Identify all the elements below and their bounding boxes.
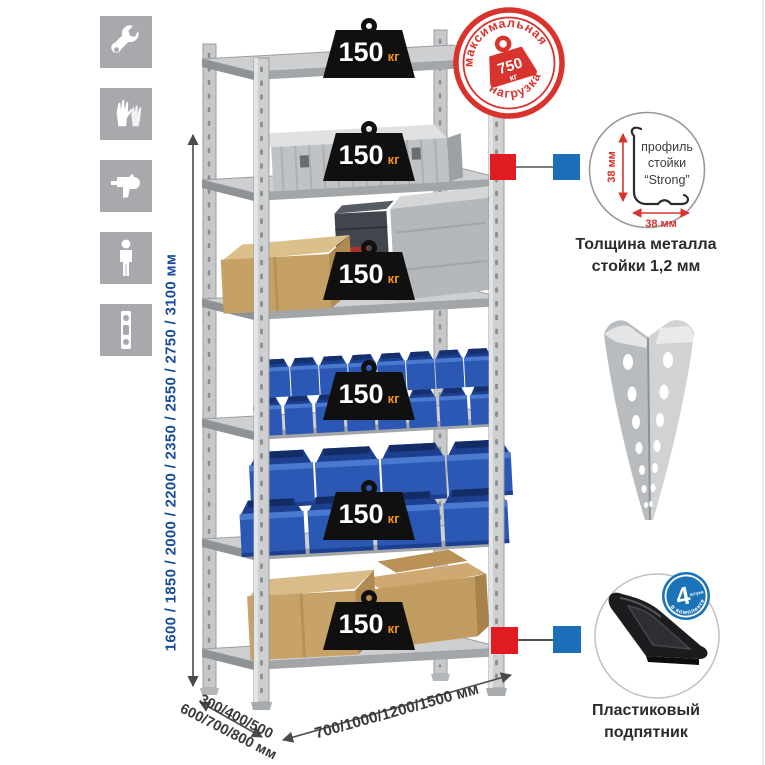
max-load-stamp: максимальная нагрузка 750 кг (452, 6, 566, 120)
shelf6-load-weight: 150 кг (323, 602, 415, 650)
profile-caption-line1: Толщина металла (551, 234, 741, 256)
load-value: 150 (339, 261, 384, 288)
profile-caption-line2: стойки 1,2 мм (551, 256, 741, 278)
profile-detail-callout: 38 мм 38 мм профиль стойки “Strong” (585, 109, 709, 233)
shelf4-load-weight: 150 кг (323, 372, 415, 420)
load-value: 150 (339, 611, 384, 638)
shelf5-load-weight: 150 кг (323, 492, 415, 540)
profile-label-line1: профиль (641, 140, 693, 154)
profile-height-dim: 38 мм (606, 151, 618, 183)
shelf2-load-weight: 150 кг (323, 133, 415, 181)
foot-callout-connector (491, 626, 581, 654)
foot-caption-line2: подпятник (551, 722, 741, 744)
load-unit: кг (388, 511, 400, 526)
load-unit: кг (388, 621, 400, 636)
profile-label-line3: “Strong” (644, 173, 689, 187)
product-infographic: 1600 / 1850 / 2000 / 2200 / 2350 / 2550 … (0, 0, 765, 765)
load-unit: кг (388, 152, 400, 167)
load-value: 150 (339, 39, 384, 66)
load-unit: кг (388, 391, 400, 406)
profile-caption: Толщина металла стойки 1,2 мм (551, 234, 741, 277)
load-value: 150 (339, 501, 384, 528)
load-value: 150 (339, 142, 384, 169)
shelf3-load-weight: 150 кг (323, 252, 415, 300)
included-quantity-badge: 4 штуки в комплекте (660, 570, 712, 622)
shelf1-load-weight: 150 кг (323, 30, 415, 78)
foot-caption: Пластиковый подпятник (551, 700, 741, 743)
load-unit: кг (388, 49, 400, 64)
metal-angle-post-image (604, 320, 694, 520)
load-unit: кг (388, 271, 400, 286)
foot-caption-line1: Пластиковый (551, 700, 741, 722)
profile-callout-connector (490, 154, 580, 180)
profile-width-dim: 38 мм (645, 218, 677, 230)
load-value: 150 (339, 381, 384, 408)
profile-label-line2: стойки (648, 156, 686, 170)
